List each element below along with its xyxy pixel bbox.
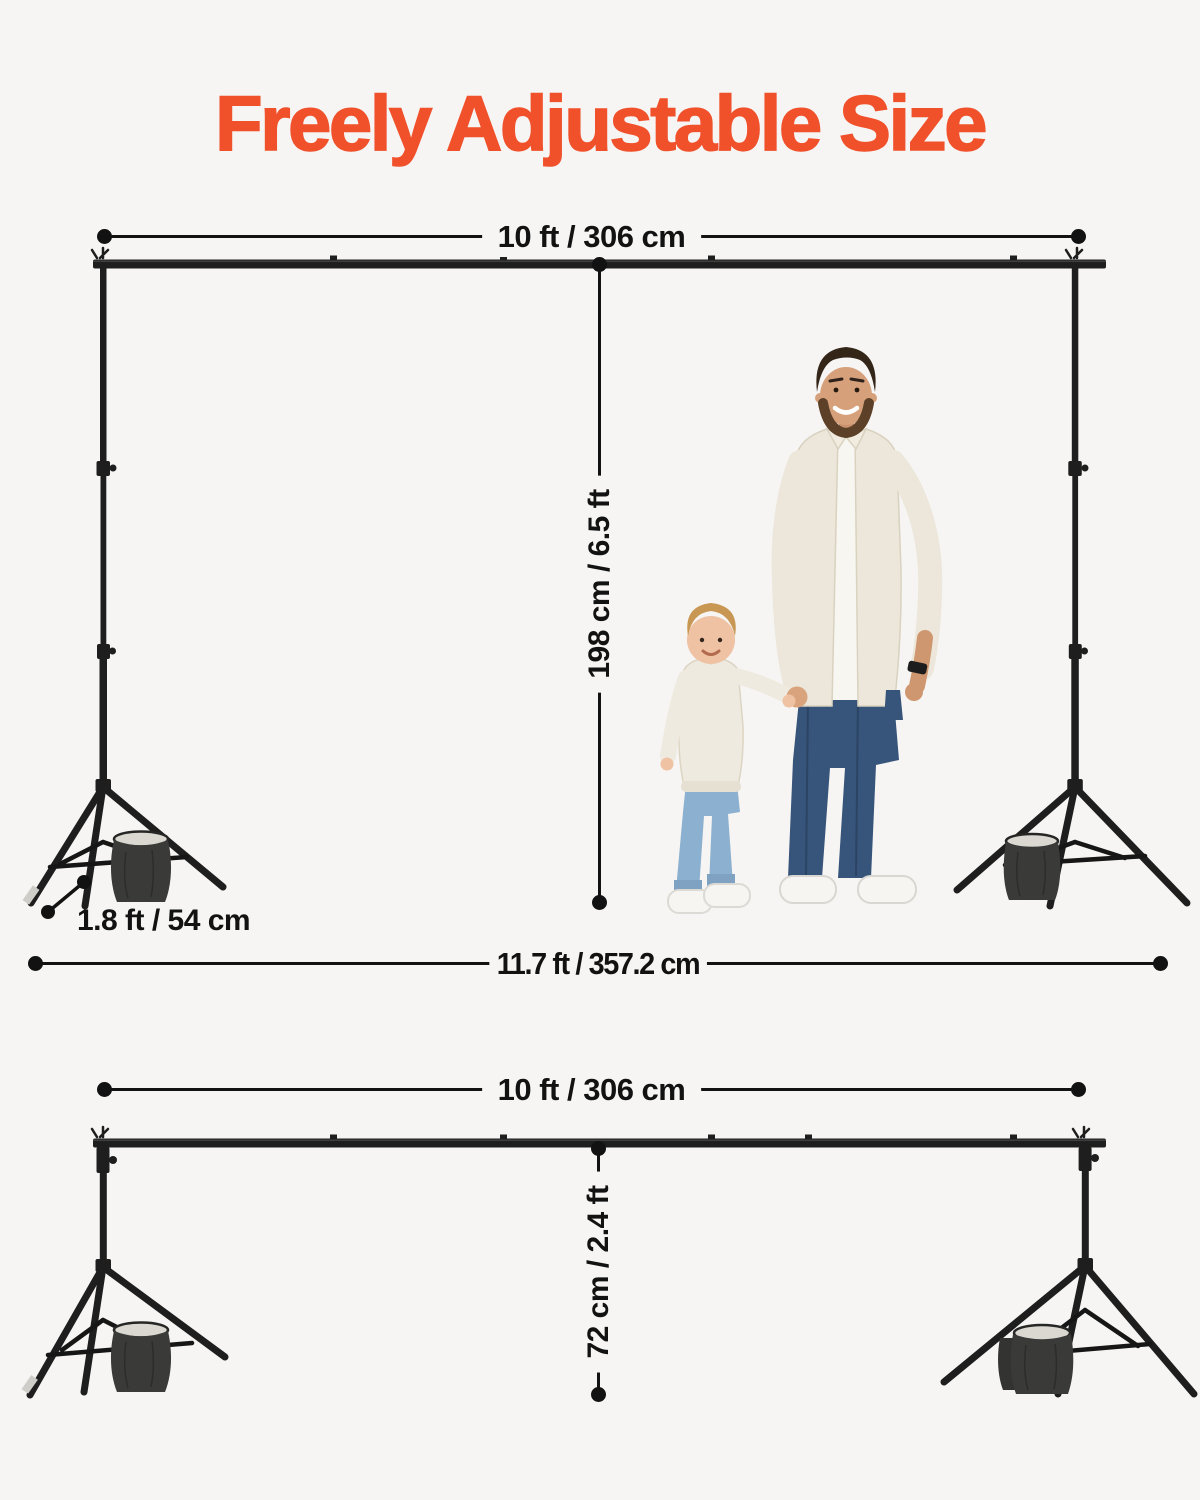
father-figure [780,347,930,903]
dimension-endpoint-dot [1153,956,1168,971]
sandbag [998,1325,1073,1394]
sandbag [111,1323,171,1393]
dimension-endpoint-dot [592,895,607,910]
top-crossbar-width-dimension: 10 ft / 306 cm [97,229,1086,244]
left-stand [22,1147,225,1395]
sandbag [1004,834,1061,900]
dimension-endpoint-dot [1071,1082,1086,1097]
left-stand [23,265,223,906]
dimension-endpoint-dot [1071,229,1086,244]
height-clamp [1079,1147,1099,1171]
height-clamp [1069,644,1088,659]
tripod-legs [957,787,1187,906]
father-and-son-photo [661,347,931,913]
right-stand [957,265,1187,906]
total-width-dimension: 11.7 ft / 357.2 cm [28,956,1168,971]
stand-height-label: 198 cm / 6.5 ft [581,475,619,692]
bottom-crossbar-width-label: 10 ft / 306 cm [482,1070,702,1110]
page-title: Freely Adjustable Size [0,78,1200,169]
lowest-height-dimension: 72 cm / 2.4 ft [591,1141,606,1402]
child-figure [661,603,789,913]
dimension-endpoint-dot [591,1387,606,1402]
stand-height-dimension: 198 cm / 6.5 ft [592,257,607,910]
lowest-height-label: 72 cm / 2.4 ft [580,1171,618,1372]
top-crossbar-width-label: 10 ft / 306 cm [482,217,702,257]
right-stand [944,1147,1194,1394]
leg-spread-label: 1.8 ft / 54 cm [77,904,250,938]
total-width-label: 11.7 ft / 357.2 cm [489,944,706,984]
infographic-canvas: Freely Adjustable Size [0,0,1200,1500]
sandbag [111,832,171,903]
height-clamp [97,461,117,476]
height-clamp [97,1147,118,1173]
height-clamp [1068,461,1088,476]
height-clamp [97,644,116,659]
bottom-crossbar-width-dimension: 10 ft / 306 cm [97,1082,1086,1097]
